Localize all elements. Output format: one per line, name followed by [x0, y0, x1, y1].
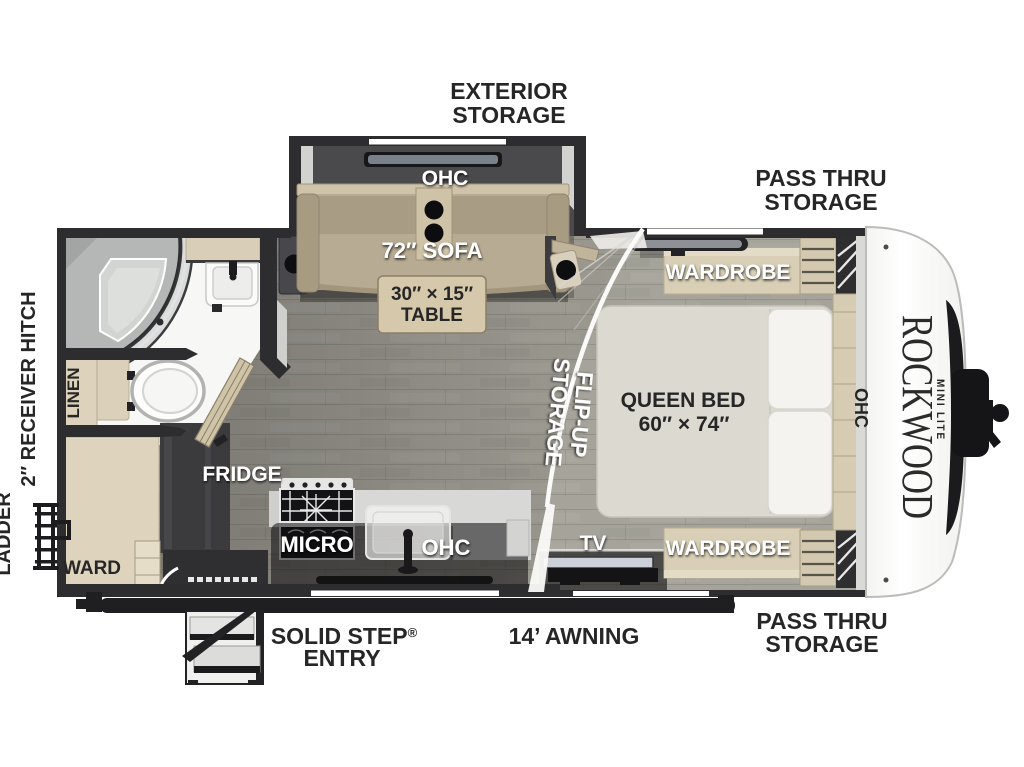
svg-text:WARDROBE: WARDROBE — [666, 537, 791, 560]
svg-text:OHC: OHC — [851, 388, 871, 428]
svg-text:60″ × 74″: 60″ × 74″ — [639, 413, 730, 436]
svg-text:ENTRY: ENTRY — [303, 645, 380, 671]
svg-text:STORAGE: STORAGE — [452, 102, 565, 128]
svg-text:MICRO: MICRO — [280, 532, 353, 557]
svg-text:QUEEN BED: QUEEN BED — [621, 389, 746, 412]
svg-text:LADDER: LADDER — [0, 492, 15, 576]
svg-text:OHC: OHC — [422, 535, 471, 560]
svg-text:STORAGE: STORAGE — [765, 631, 878, 657]
svg-text:2″ RECEIVER HITCH: 2″ RECEIVER HITCH — [18, 291, 40, 486]
svg-text:TV: TV — [580, 532, 607, 555]
svg-text:72″ SOFA: 72″ SOFA — [381, 238, 482, 263]
svg-text:30″ × 15″: 30″ × 15″ — [391, 284, 473, 305]
svg-text:WARDROBE: WARDROBE — [666, 261, 791, 284]
svg-text:MINI LITE: MINI LITE — [934, 379, 946, 441]
svg-text:WARD: WARD — [63, 558, 121, 579]
svg-text:PASS THRU: PASS THRU — [755, 165, 886, 191]
svg-text:EXTERIOR: EXTERIOR — [450, 78, 568, 104]
svg-text:STORAGE: STORAGE — [764, 189, 877, 215]
svg-text:OHC: OHC — [422, 167, 469, 190]
svg-text:14’ AWNING: 14’ AWNING — [509, 623, 640, 649]
svg-text:LINEN: LINEN — [64, 368, 83, 419]
svg-text:TABLE: TABLE — [401, 305, 463, 326]
svg-text:FRIDGE: FRIDGE — [202, 463, 281, 486]
